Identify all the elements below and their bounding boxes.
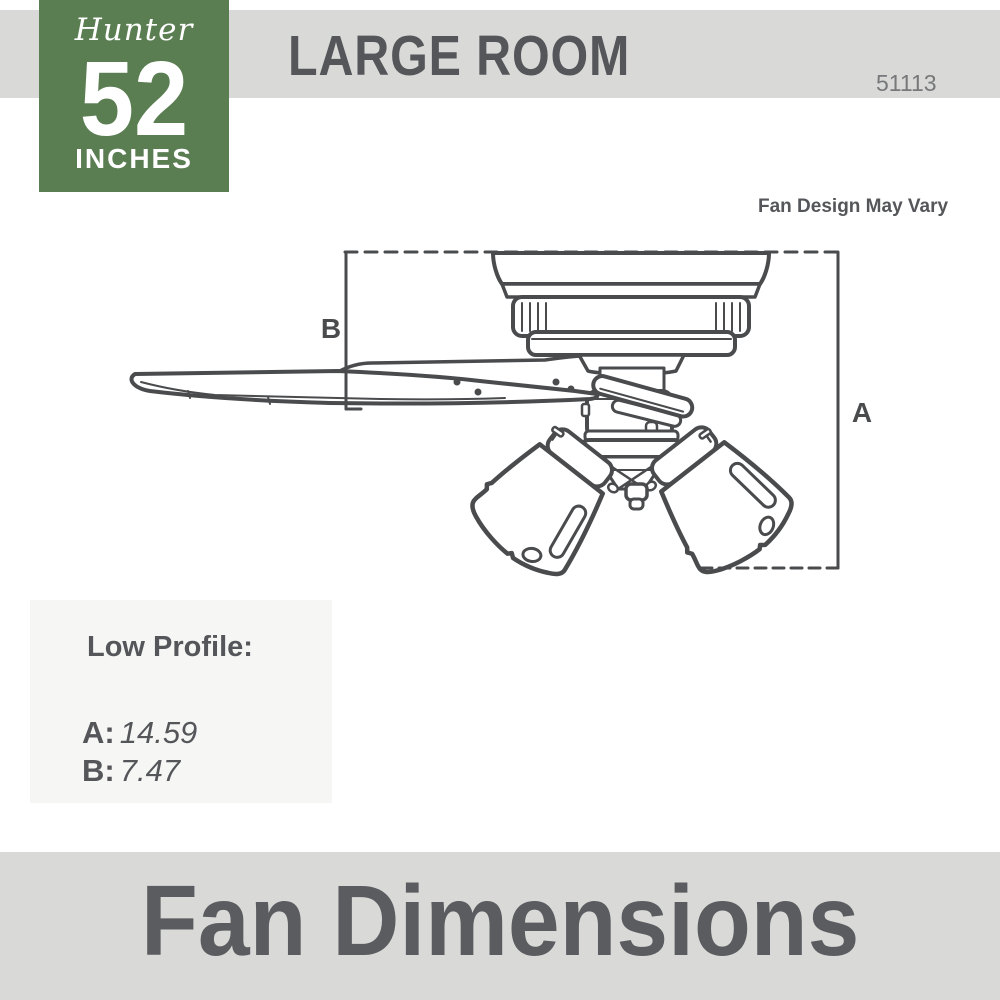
fan-motor [493, 253, 769, 374]
shade-dot [522, 547, 542, 562]
dim-label-a: A [852, 397, 872, 428]
dim-a-value: 14.59 [120, 715, 198, 750]
dim-row-a: A:14.59 [82, 714, 332, 752]
dim-label-b: B [321, 313, 341, 344]
fan-blade [131, 371, 597, 404]
footer-title: Fan Dimensions [141, 864, 859, 979]
dim-a-label: A: [82, 715, 115, 750]
dimension-values: A:14.59 B:7.47 [82, 714, 332, 790]
canopy [493, 253, 769, 284]
finial [607, 480, 658, 509]
footer-band: Fan Dimensions [0, 852, 1000, 1000]
dim-row-b: B:7.47 [82, 752, 332, 790]
product-infographic: Hunter 52 INCHES LARGE ROOM 51113 Fan De… [0, 0, 1000, 1000]
motor-band-lower [528, 332, 735, 355]
dim-b-value: 7.47 [120, 753, 180, 788]
low-profile-panel: Low Profile: A:14.59 B:7.47 [30, 600, 332, 803]
fan-drawing [131, 253, 803, 588]
panel-title: Low Profile: [87, 631, 332, 664]
housing-notch [582, 404, 589, 416]
far-blade [338, 356, 580, 372]
dim-b-label: B: [82, 753, 115, 788]
